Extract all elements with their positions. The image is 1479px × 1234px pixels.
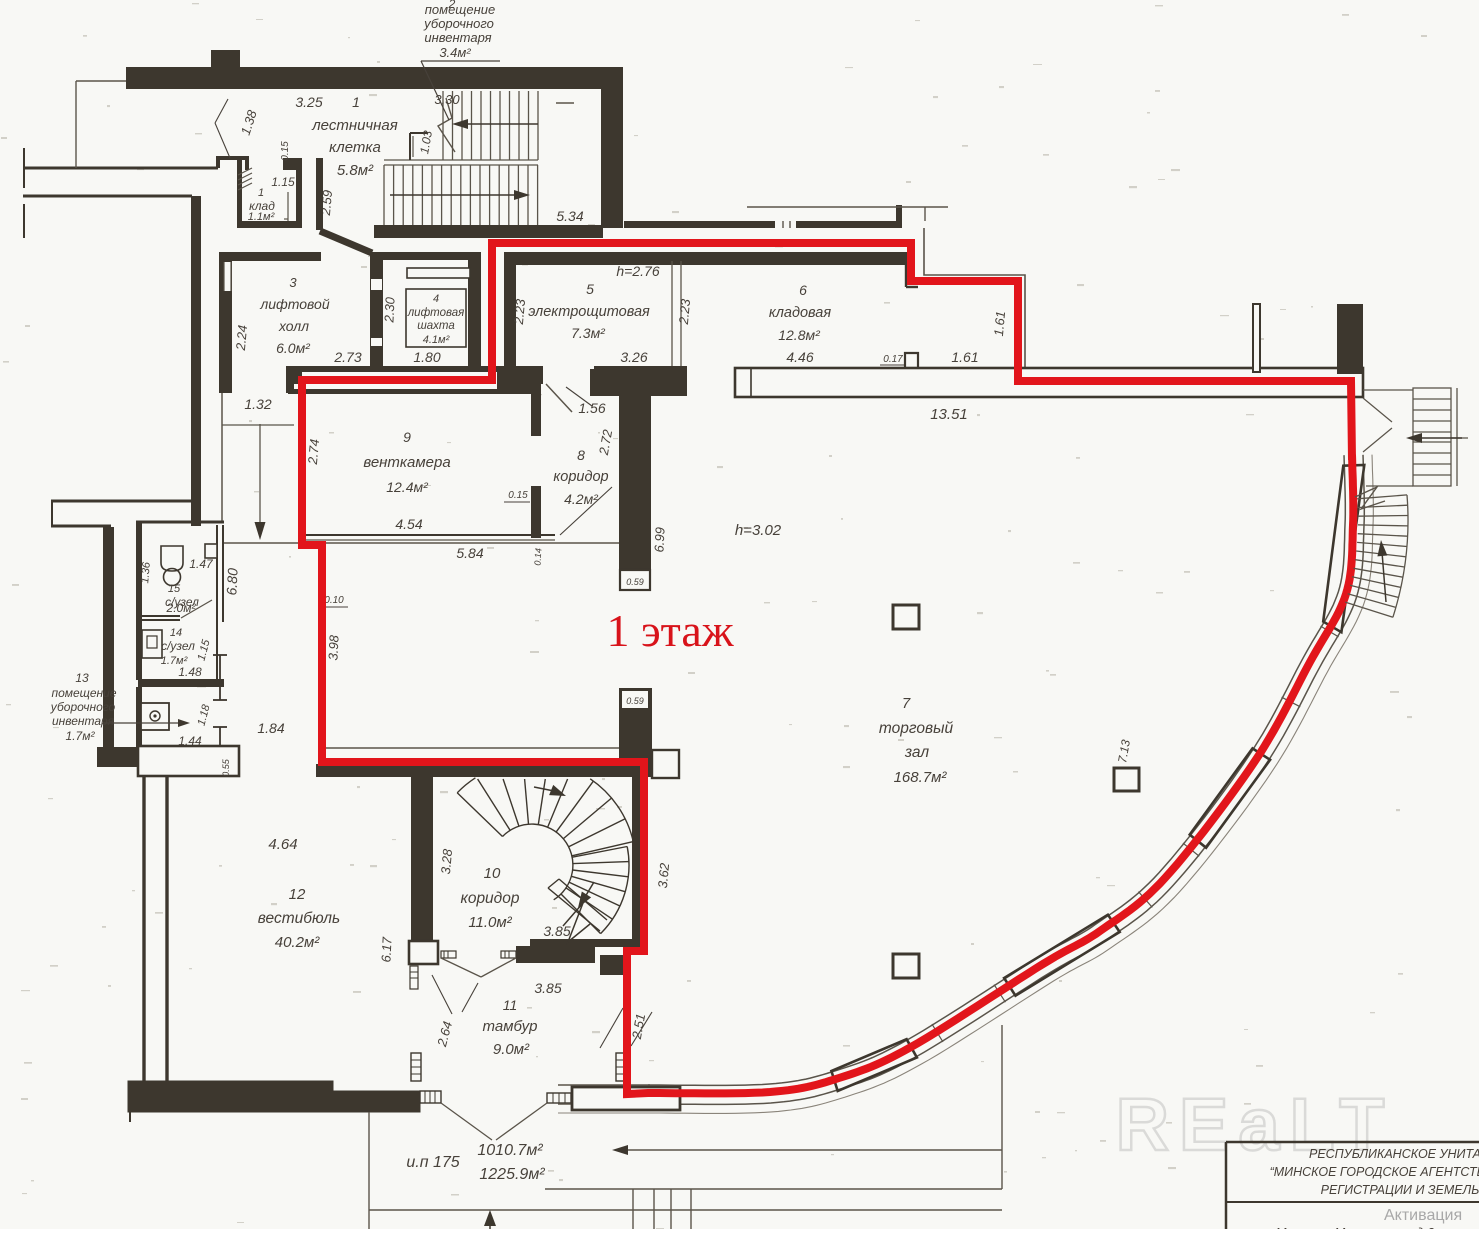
svg-text:2: 2 (448, 0, 456, 11)
svg-text:15: 15 (168, 583, 181, 595)
svg-text:10: 10 (484, 865, 501, 882)
svg-text:4.54: 4.54 (395, 516, 422, 532)
svg-text:1.36: 1.36 (139, 561, 153, 584)
svg-text:3.4м²: 3.4м² (439, 45, 471, 60)
svg-text:2.0м²: 2.0м² (166, 601, 197, 615)
svg-text:помещение: помещение (51, 686, 116, 700)
svg-text:2.24: 2.24 (233, 324, 250, 352)
svg-text:13: 13 (75, 671, 89, 685)
svg-text:11: 11 (503, 997, 518, 1013)
svg-text:6: 6 (799, 282, 807, 298)
svg-text:168.7м²: 168.7м² (894, 769, 948, 786)
svg-text:h=2.76: h=2.76 (616, 263, 659, 279)
svg-text:вестибюль: вестибюль (258, 910, 340, 927)
svg-text:h=3.02: h=3.02 (735, 522, 782, 539)
svg-text:2.23: 2.23 (511, 298, 528, 326)
svg-text:“МИНСКОЕ ГОРОДСКОЕ АГЕНТСТВО: “МИНСКОЕ ГОРОДСКОЕ АГЕНТСТВО (1270, 1165, 1479, 1179)
svg-text:2.73: 2.73 (333, 349, 361, 365)
svg-text:шахта: шахта (417, 320, 455, 332)
svg-text:13.51: 13.51 (930, 406, 968, 423)
svg-text:1225.9м²: 1225.9м² (479, 1166, 545, 1183)
svg-text:кладовая: кладовая (769, 305, 831, 321)
svg-text:40.2м²: 40.2м² (275, 934, 320, 951)
svg-text:7: 7 (902, 695, 911, 712)
svg-text:торговый: торговый (879, 720, 954, 737)
svg-text:4.2м²: 4.2м² (564, 491, 599, 507)
svg-text:1.61: 1.61 (951, 349, 978, 365)
svg-text:6.0м²: 6.0м² (276, 340, 311, 356)
svg-text:1.47: 1.47 (189, 557, 214, 571)
svg-text:лифтовой: лифтовой (259, 296, 329, 312)
svg-text:0.10: 0.10 (324, 595, 344, 606)
svg-text:0.55: 0.55 (221, 758, 231, 777)
svg-text:электрощитовая: электрощитовая (528, 304, 650, 320)
svg-text:инвентаря: инвентаря (52, 714, 115, 728)
svg-text:коридор: коридор (553, 469, 608, 485)
svg-text:3.98: 3.98 (325, 634, 341, 661)
svg-text:1.56: 1.56 (578, 400, 605, 416)
svg-text:4.1м²: 4.1м² (423, 334, 450, 346)
svg-text:12.4м²: 12.4м² (386, 479, 429, 495)
svg-text:0.59: 0.59 (626, 577, 644, 587)
svg-text:9.0м²: 9.0м² (493, 1041, 530, 1058)
svg-text:1.1м²: 1.1м² (248, 211, 275, 223)
svg-text:8: 8 (577, 447, 585, 463)
svg-text:1.61: 1.61 (991, 310, 1008, 337)
svg-text:венткамера: венткамера (363, 454, 450, 471)
svg-text:3.62: 3.62 (655, 862, 672, 889)
svg-text:14: 14 (170, 627, 182, 639)
svg-text:12.8м²: 12.8м² (778, 327, 821, 343)
svg-text:1.80: 1.80 (413, 349, 440, 365)
svg-text:6.80: 6.80 (223, 568, 240, 596)
svg-text:1.84: 1.84 (257, 720, 284, 736)
svg-text:1.48: 1.48 (178, 665, 202, 679)
svg-text:г Минск ул Маяковского д 3: г Минск ул Маяковского д 3 (1266, 1225, 1436, 1229)
svg-text:5: 5 (586, 281, 594, 297)
svg-text:3.26: 3.26 (620, 349, 647, 365)
svg-text:уборочного: уборочного (50, 700, 116, 714)
svg-text:11.0м²: 11.0м² (468, 914, 512, 931)
svg-text:6.17: 6.17 (378, 936, 394, 963)
svg-text:5.84: 5.84 (456, 545, 483, 561)
svg-text:холл: холл (278, 318, 309, 334)
svg-text:6.99: 6.99 (651, 527, 667, 553)
svg-text:и.п 175: и.п 175 (406, 1154, 459, 1171)
svg-text:тамбур: тамбур (483, 1018, 538, 1035)
svg-text:7.3м²: 7.3м² (571, 325, 606, 341)
svg-text:0.17: 0.17 (883, 354, 903, 365)
svg-text:3.85: 3.85 (534, 980, 561, 996)
svg-text:3.85: 3.85 (543, 923, 570, 939)
svg-text:2.74: 2.74 (305, 438, 322, 466)
svg-text:4.64: 4.64 (268, 836, 297, 853)
svg-text:лестничная: лестничная (311, 117, 398, 134)
svg-text:5.34: 5.34 (556, 208, 583, 224)
svg-text:3.28: 3.28 (438, 848, 455, 875)
svg-text:9: 9 (403, 429, 411, 445)
svg-text:с/узел: с/узел (161, 639, 195, 653)
svg-text:12: 12 (289, 886, 306, 903)
svg-text:1: 1 (352, 94, 360, 110)
svg-text:1.7м²: 1.7м² (66, 729, 96, 743)
svg-text:Активация: Активация (1384, 1207, 1462, 1224)
svg-text:РЕСПУБЛИКАНСКОЕ УНИТА: РЕСПУБЛИКАНСКОЕ УНИТА (1309, 1147, 1479, 1161)
svg-text:уборочного: уборочного (423, 16, 494, 31)
svg-text:2.23: 2.23 (676, 298, 693, 326)
svg-text:4: 4 (433, 293, 439, 305)
svg-text:4.46: 4.46 (786, 349, 813, 365)
svg-text:5.8м²: 5.8м² (337, 162, 374, 179)
svg-text:коридор: коридор (461, 890, 520, 907)
svg-text:лифтовая: лифтовая (407, 307, 465, 319)
svg-text:0.14: 0.14 (533, 548, 544, 566)
svg-text:0.59: 0.59 (626, 696, 644, 706)
svg-text:клетка: клетка (329, 139, 381, 156)
svg-text:0.15: 0.15 (280, 141, 291, 161)
svg-text:инвентаря: инвентаря (424, 30, 491, 45)
svg-text:3: 3 (289, 275, 297, 290)
svg-text:помещение: помещение (425, 2, 495, 17)
svg-text:3.30: 3.30 (434, 92, 460, 107)
svg-text:1010.7м²: 1010.7м² (477, 1142, 543, 1159)
svg-text:РЕГИСТРАЦИИ И ЗЕМЕЛЬ: РЕГИСТРАЦИИ И ЗЕМЕЛЬ (1321, 1183, 1479, 1197)
svg-text:1 этаж: 1 этаж (606, 605, 733, 656)
svg-text:3.25: 3.25 (295, 94, 322, 110)
svg-text:1: 1 (258, 187, 264, 199)
svg-text:1.32: 1.32 (244, 396, 271, 412)
svg-text:зал: зал (904, 744, 929, 761)
svg-text:2.30: 2.30 (381, 296, 397, 324)
svg-text:0.15: 0.15 (508, 490, 528, 501)
svg-text:1.15: 1.15 (271, 175, 295, 189)
